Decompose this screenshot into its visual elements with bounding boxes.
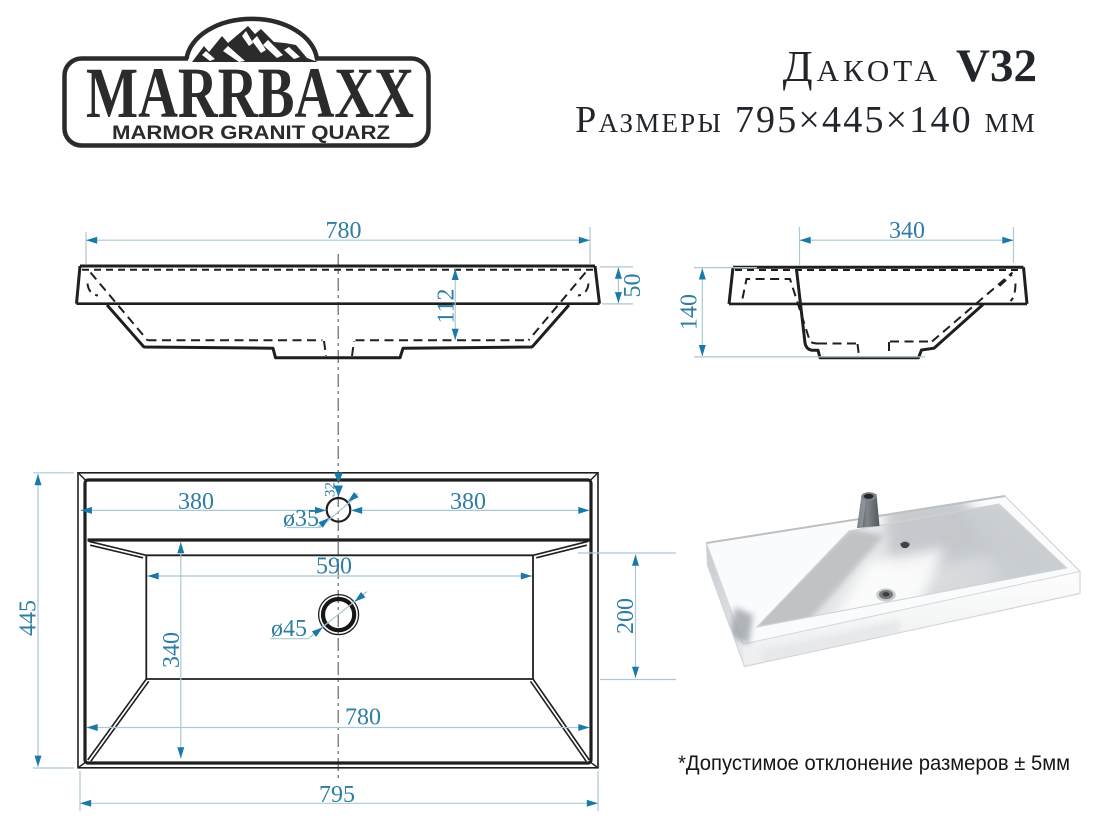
svg-text:380: 380 xyxy=(450,489,486,515)
svg-text:50: 50 xyxy=(620,274,646,298)
svg-text:140: 140 xyxy=(677,294,703,330)
svg-text:32: 32 xyxy=(323,482,339,497)
svg-text:795: 795 xyxy=(319,782,355,808)
svg-text:200: 200 xyxy=(613,598,639,634)
svg-text:445: 445 xyxy=(16,600,42,636)
svg-text:MARMOR GRANIT QUARZ: MARMOR GRANIT QUARZ xyxy=(112,122,390,144)
svg-text:340: 340 xyxy=(889,218,925,244)
svg-text:380: 380 xyxy=(178,489,214,515)
svg-text:Дакота V32: Дакота V32 xyxy=(783,40,1037,92)
svg-text:Размеры 795×445×140 мм: Размеры 795×445×140 мм xyxy=(575,99,1037,141)
svg-text:MARRBAXX: MARRBAXX xyxy=(86,53,414,133)
svg-text:780: 780 xyxy=(326,218,362,244)
svg-text:590: 590 xyxy=(316,554,352,580)
svg-text:780: 780 xyxy=(345,705,381,731)
svg-text:ø45: ø45 xyxy=(271,616,307,642)
svg-text:112: 112 xyxy=(434,288,460,323)
svg-text:ø35: ø35 xyxy=(283,506,319,532)
svg-text:*Допустимое отклонение размеро: *Допустимое отклонение размеров ± 5мм xyxy=(678,751,1070,775)
svg-text:340: 340 xyxy=(159,632,185,668)
